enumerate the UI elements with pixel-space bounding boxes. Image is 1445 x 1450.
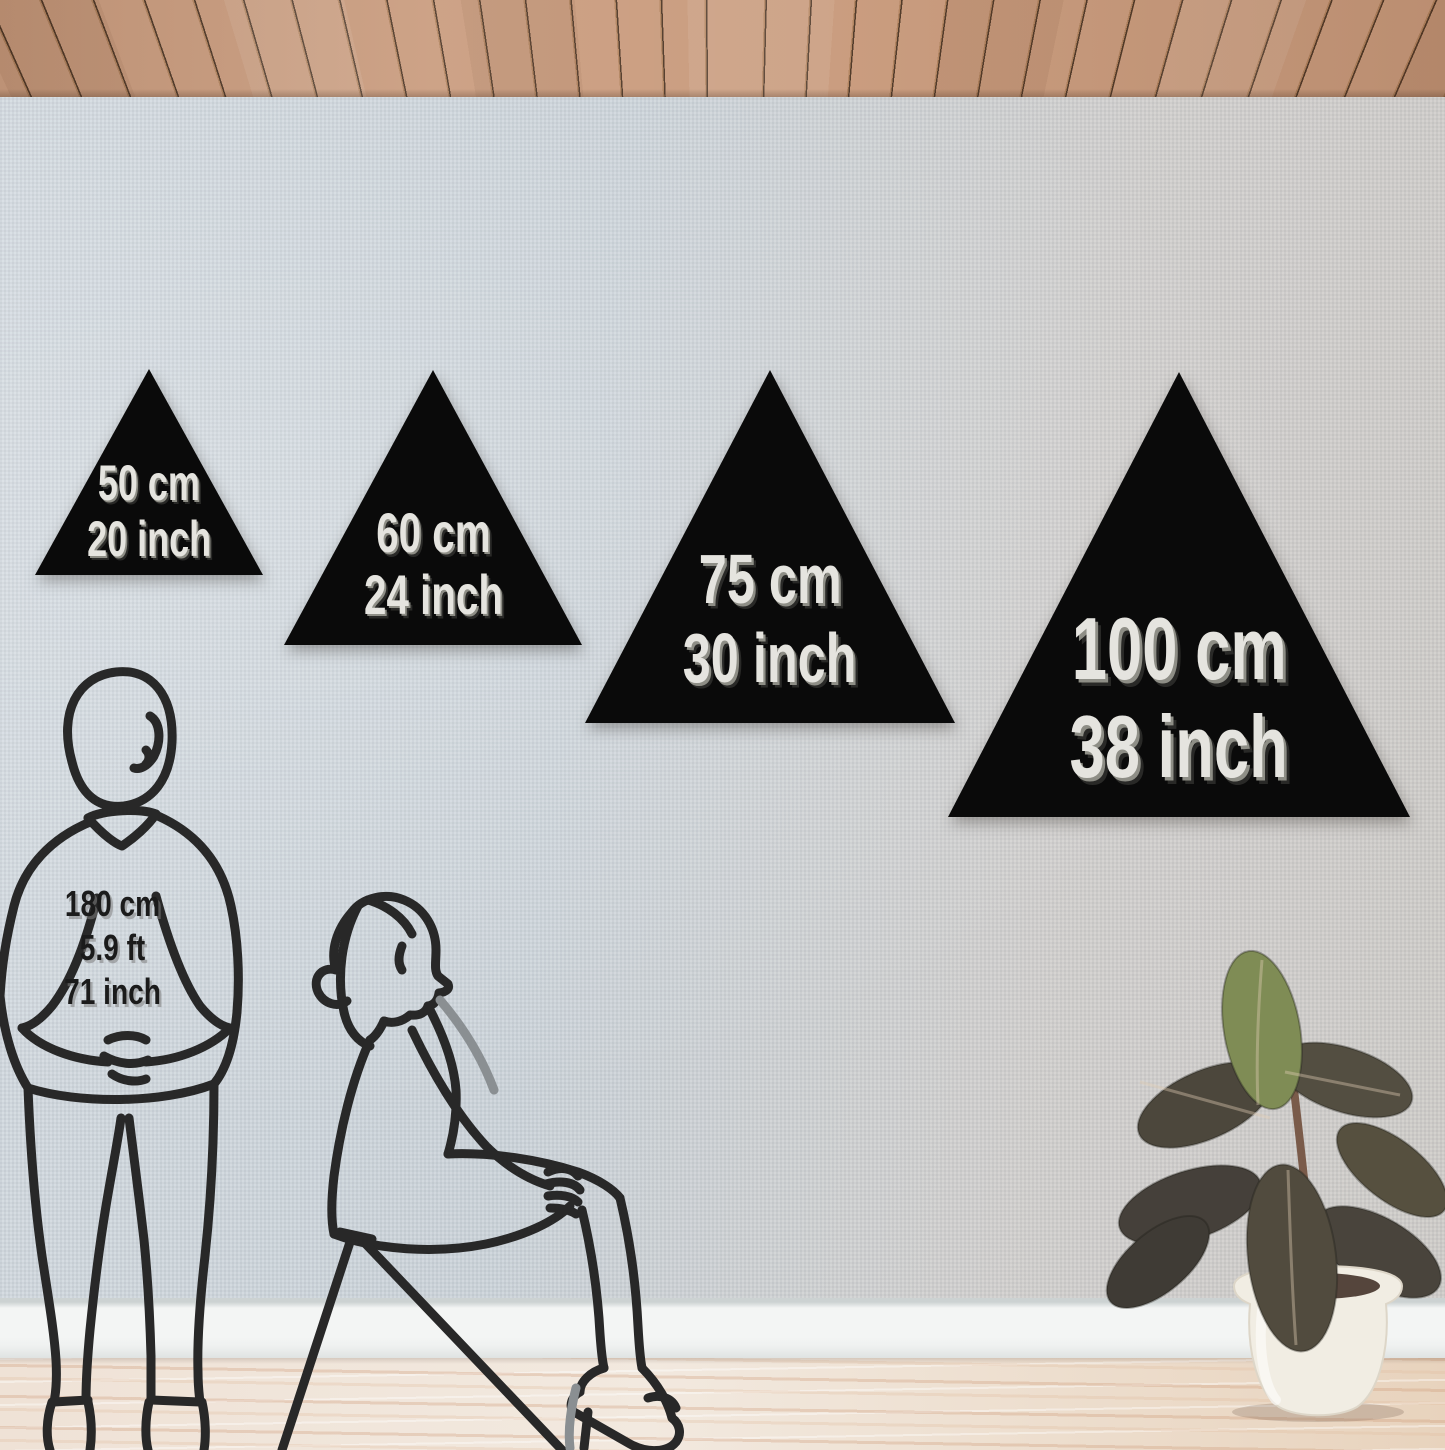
height-inch: 71 inch — [52, 970, 173, 1014]
rubber-plant — [1091, 945, 1445, 1422]
woman-accent-lines — [440, 1000, 576, 1448]
size-chart-mockup: 50 cm 20 inch 60 cm 24 inch 75 cm 30 inc… — [0, 0, 1445, 1450]
height-cm: 180 cm — [52, 882, 173, 926]
standing-man-figure — [0, 672, 238, 1450]
height-ft: 5.9 ft — [52, 926, 173, 970]
seated-woman-figure — [282, 896, 679, 1450]
person-height-label: 180 cm 5.9 ft 71 inch — [35, 882, 190, 1014]
figures-overlay — [0, 0, 1445, 1450]
